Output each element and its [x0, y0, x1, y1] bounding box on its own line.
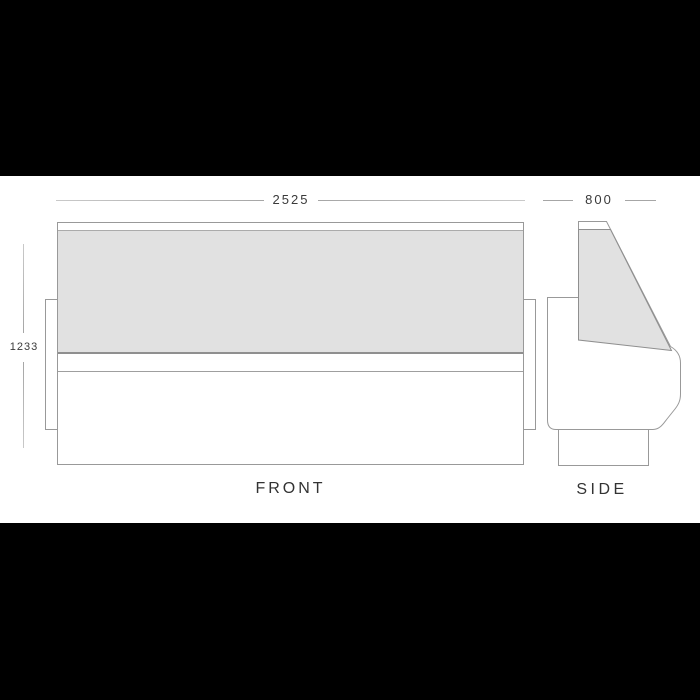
- front-view-outline: [57, 222, 524, 465]
- side-glass-panel: [579, 230, 672, 351]
- front-glass-panel: [58, 230, 523, 354]
- front-trim-line: [58, 371, 523, 372]
- dimension-drawing: 2525 800 1233 FRONT SIDE: [0, 0, 700, 700]
- side-base-plinth: [559, 430, 649, 466]
